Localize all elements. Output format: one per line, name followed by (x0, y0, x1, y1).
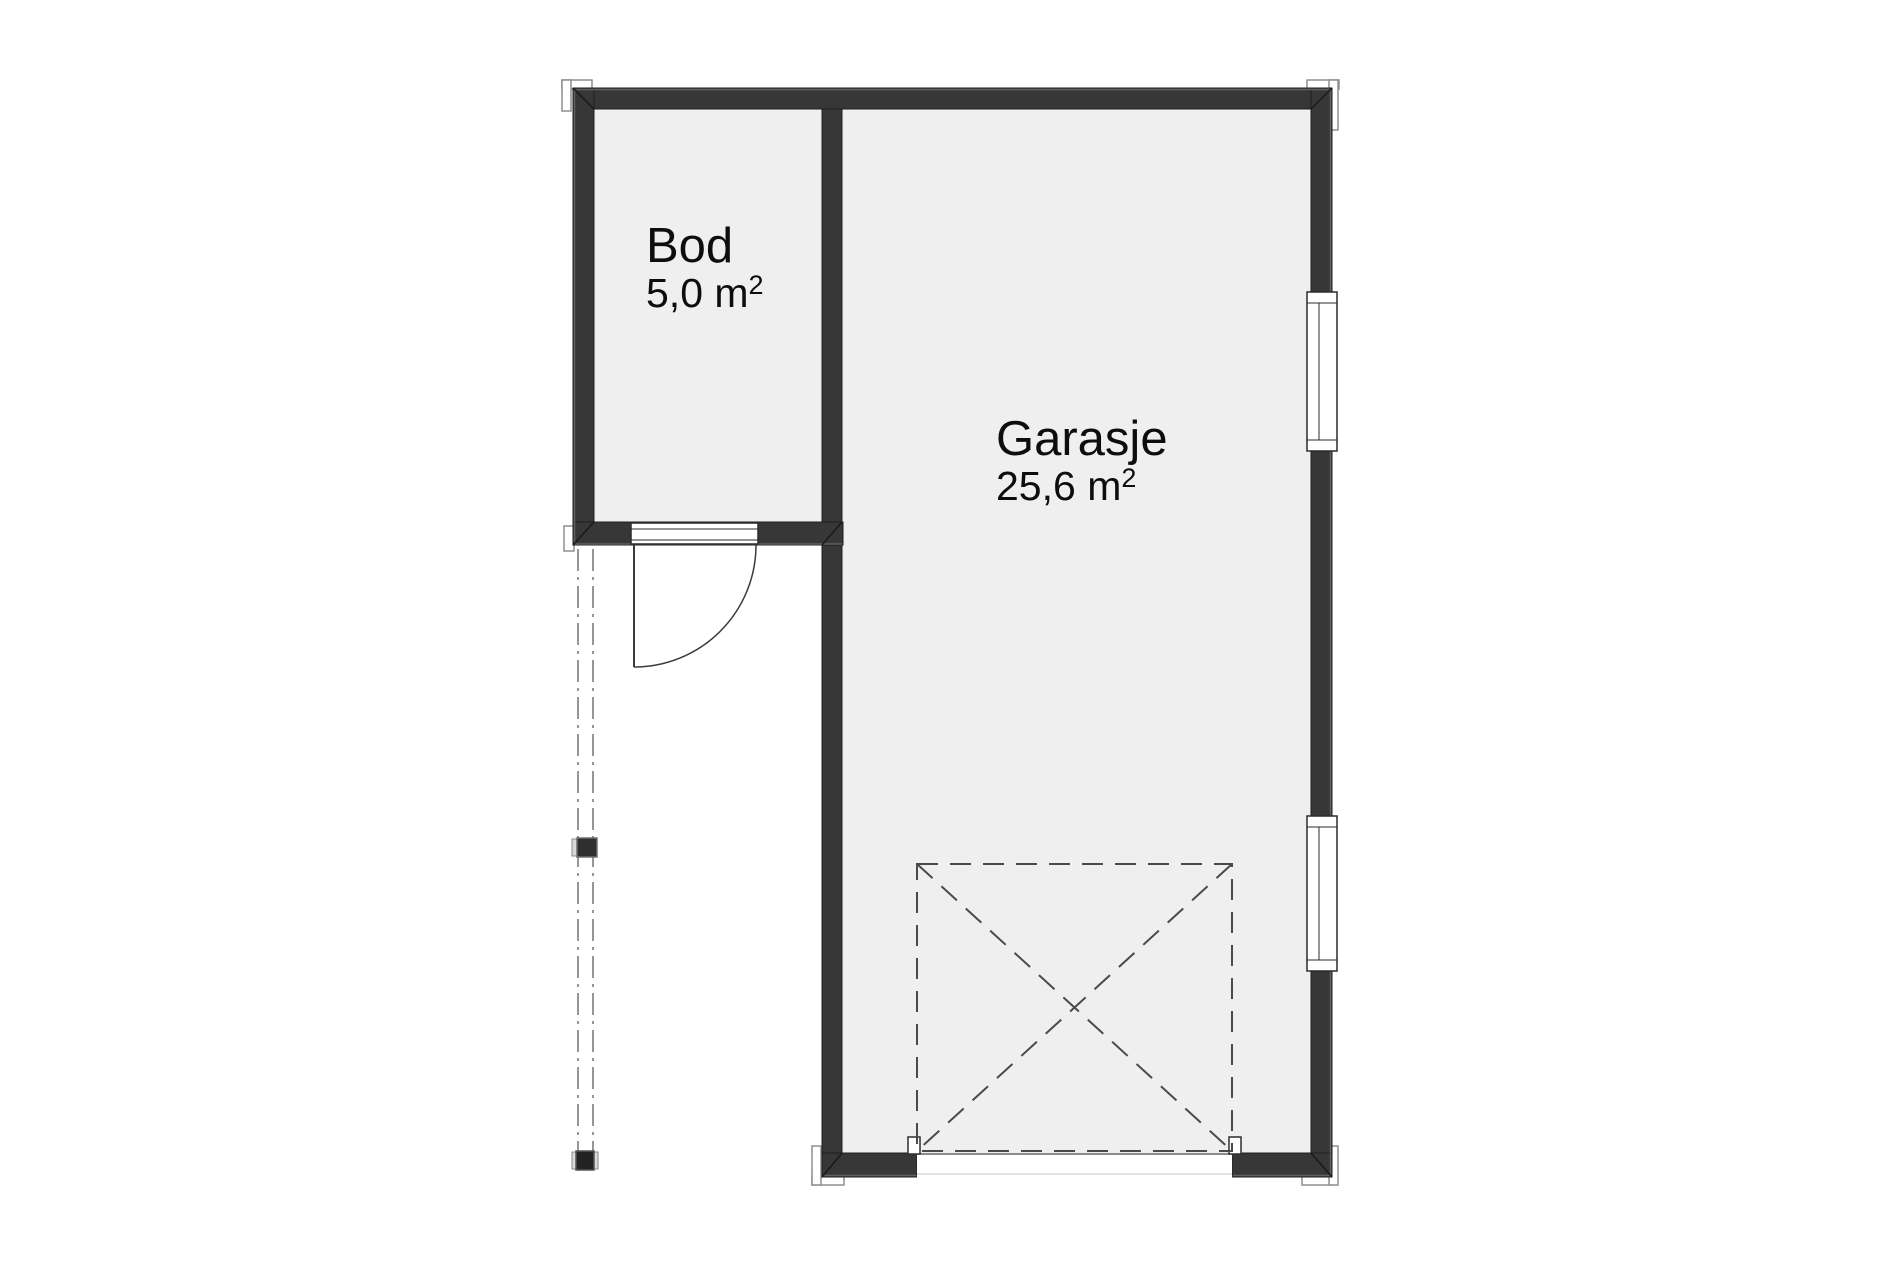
bod-room-name: Bod (646, 219, 733, 273)
carport-post-bottom (576, 1151, 594, 1170)
window-right-lower (1307, 816, 1337, 971)
trim-top-left-v (562, 80, 571, 111)
carport-posts (572, 838, 598, 1170)
garasje-room-area-superscript: 2 (1121, 463, 1136, 493)
window-right-upper-frame (1307, 292, 1337, 451)
window-right-upper (1307, 292, 1337, 451)
wall-left-bod (573, 88, 594, 545)
wall-garage-bottom-right (1232, 1153, 1332, 1177)
garage-door-jamb-left (908, 1137, 920, 1154)
wall-interior-bod-garasje (822, 109, 842, 1177)
floor-plan-page: Bod 5,0 m2 Garasje 25,6 m2 (0, 0, 1900, 1266)
window-right-lower-frame (1307, 816, 1337, 971)
bod-room-area-value: 5,0 m (646, 270, 749, 316)
entry-door-swing-arc (634, 545, 756, 667)
wall-garage-bottom-left (822, 1153, 917, 1177)
floor-plan-canvas: Bod 5,0 m2 Garasje 25,6 m2 (0, 0, 1900, 1266)
garasje-room-area-value: 25,6 m (996, 463, 1121, 509)
wall-top (573, 88, 1332, 109)
garasje-room-name: Garasje (996, 412, 1168, 466)
entry-door (631, 523, 758, 667)
bod-room-area-superscript: 2 (749, 270, 764, 300)
garasje-floor (842, 109, 1311, 1153)
trim-garage-bottom-left-v (812, 1146, 821, 1185)
entry-door-frame (631, 523, 758, 544)
wall-right (1311, 88, 1332, 1177)
garage-door-threshold (917, 1154, 1232, 1179)
bod-room-area: 5,0 m2 (646, 270, 764, 316)
carport-post-middle (577, 838, 597, 857)
garasje-room-area: 25,6 m2 (996, 463, 1136, 509)
